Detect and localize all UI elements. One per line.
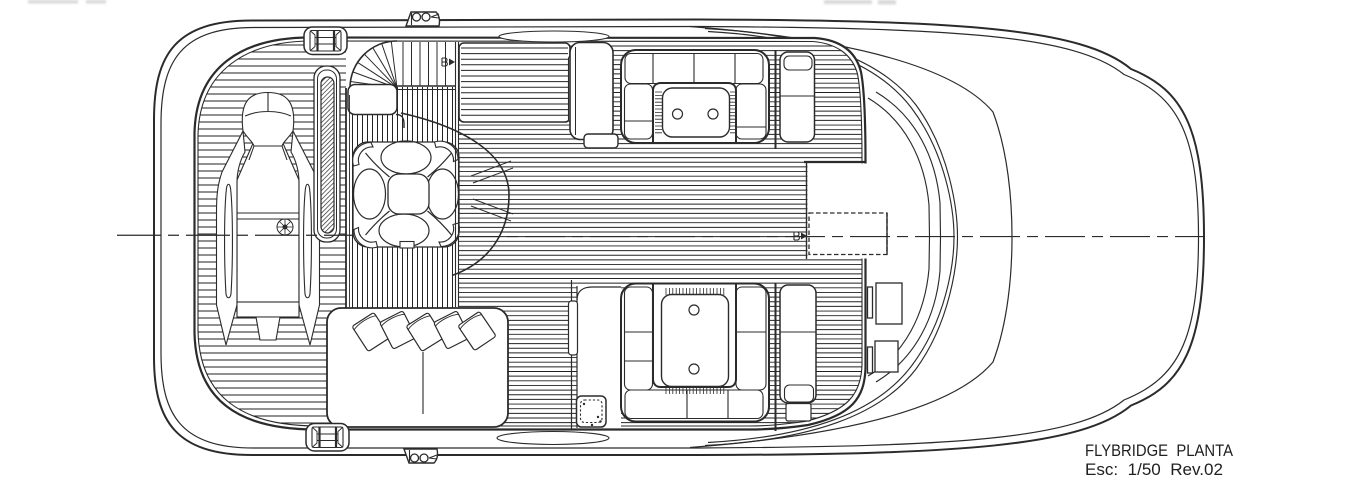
svg-text:FLYBRIDGE PLANTA: FLYBRIDGE PLANTA [1085,442,1233,460]
svg-text:Esc: 1/50 Rev.02: Esc: 1/50 Rev.02 [1085,461,1223,479]
